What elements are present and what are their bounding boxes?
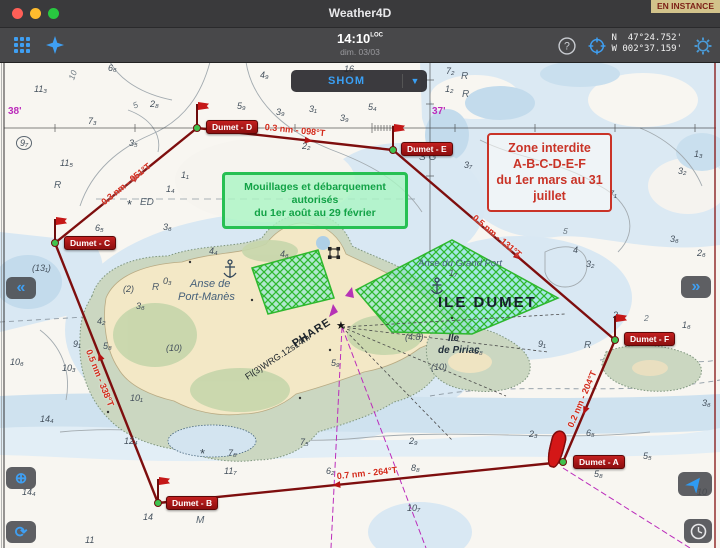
depth-sounding-label: 3₇ [464,160,472,170]
depth-sounding-label: 2₂ [302,141,310,151]
svg-text:?: ? [564,41,570,53]
depth-sounding-label: 3₂ [678,166,686,176]
depth-sounding-label: (2) [123,284,134,294]
route-leg-distance-bearing: 0.5 nm - 131°T [471,213,524,260]
chart-label: R [462,89,469,100]
depth-sounding-label: 1₂ [445,84,453,94]
note-line: Mouillages et débarquement [225,181,405,194]
depth-sounding-label: 7₈ [228,448,237,458]
depth-sounding-label: 8₈ [411,463,420,473]
depth-sounding-label: 14 [143,512,153,522]
gps-coordinates: N 47°24.752' W 002°37.159' [612,33,682,55]
waypoint-label-badge[interactable]: Dumet - C [64,236,116,250]
depth-sounding-label: 11₅ [60,158,73,168]
depth-sounding-label: 3₉ [340,113,349,123]
chevron-down-icon[interactable]: ▼ [403,76,427,86]
depth-sounding-label: (4.8) [405,332,424,342]
refresh-icon: ⟳ [15,523,28,541]
chart-label: Anse de [190,278,230,290]
depth-sounding-label: 3₁ [309,104,317,114]
waypoint-dot [611,336,619,344]
route-leg-distance-bearing: 0.7 nm - 264°T [336,465,397,481]
target-icon: ⊕ [15,469,28,487]
depth-sounding-label: 3₂ [586,259,594,269]
depth-sounding-label: 9₇ [16,136,32,150]
depth-sounding-label: (10) [166,343,182,353]
waypoint-label-badge[interactable]: Dumet - D [206,120,258,134]
window-title: Weather4D [0,6,720,20]
chart-label: ★ [336,319,346,332]
weather4d-window: 11₃7₃9₇11₅6₆164₉5₉3₉3₁3₉5₄2₂2₈3₅1₁1₄3₆6₅… [0,0,720,548]
waypoint-dot [193,124,201,132]
nautical-chart[interactable]: 11₃7₃9₇11₅6₆164₉5₉3₉3₁3₉5₄2₂2₈3₅1₁1₄3₆6₅… [0,0,720,548]
waypoint-dot [51,239,59,247]
waypoint-dot [154,499,162,507]
depth-sounding-label: 3₆ [702,398,711,408]
chart-label: R [584,340,591,351]
chart-label: Port-Manès [178,291,235,303]
note-line: du 1er mars au 31 [489,172,610,188]
chart-label: 5 [131,99,140,110]
route-leg-distance-bearing: 0.5 nm - 338°T [84,348,116,408]
depth-sounding-label: 4 [573,245,578,255]
depth-sounding-label: 3₉ [276,107,285,117]
depth-sounding-label: 10₃ [62,363,76,373]
depth-sounding-label: 7₃ [88,116,97,126]
chart-label: 5 [562,226,568,237]
depth-sounding-label: 4₉ [260,70,269,80]
chart-label: Fl(3)WRG.12s14m [243,332,311,381]
depth-sounding-label: (13₁) [32,263,51,273]
chart-label: 38' [8,106,22,117]
depth-sounding-label: 5₉ [331,358,340,368]
depth-sounding-label: 11₃ [34,84,47,94]
depth-sounding-label: 3₆ [136,301,145,311]
route-leg-distance-bearing: 0.3 nm - 098°T [264,122,325,138]
depth-sounding-label: 5₉ [237,101,246,111]
flag-icon [394,124,405,132]
depth-sounding-label: 5₅ [643,451,652,461]
waypoint-label-badge[interactable]: Dumet - F [624,332,675,346]
chart-label: ED [140,197,154,208]
chart-label: R [152,282,159,293]
depth-sounding-label: 1₇ [449,268,457,278]
depth-sounding-label: 6₅ [586,428,595,438]
chart-provider-dropdown[interactable]: SHOM ▼ [291,70,427,92]
chart-label: R [461,71,468,82]
anchorage-allowed-note: Mouillages et débarquement autorisés du … [222,172,408,229]
depth-sounding-label: 5₈ [103,341,112,351]
depth-sounding-label: (10) [431,362,447,372]
depth-sounding-label: 4₆ [280,249,289,259]
depth-sounding-label: 14₄ [40,414,54,424]
previous-button[interactable]: « [6,277,36,299]
depth-sounding-label: 3₆ [163,222,172,232]
chevrons-left-icon: « [17,279,26,297]
next-button[interactable]: » [681,276,711,298]
depth-sounding-label: 4₄ [209,246,218,256]
note-line: A-B-C-D-E-F [489,156,610,172]
depth-sounding-label: 12₄ [124,436,138,446]
depth-sounding-label: 3₆ [670,234,679,244]
status-badge: EN INSTANCE [651,0,720,13]
chart-label: M [196,515,204,526]
flag-icon [56,217,67,225]
depth-sounding-label: 10₁ [130,393,143,403]
chart-label: * [200,446,205,461]
current-time: 14:10 [337,31,370,46]
note-line: autorisés [225,194,405,207]
depth-sounding-label: 10₇ [407,503,420,513]
chart-label: * [127,197,132,212]
chart-label: 2 [644,313,649,323]
depth-sounding-label: 6₆ [108,63,117,73]
depth-sounding-label: 7₅ [300,437,309,447]
depth-sounding-label: 4₂ [97,316,105,326]
navigation-mode-button[interactable] [678,472,712,496]
window-titlebar: Weather4D [0,0,720,28]
chart-label: Ile [448,333,459,344]
flag-icon [159,477,170,485]
refresh-button[interactable]: ⟳ [6,521,36,543]
help-icon[interactable]: ? [558,37,576,55]
depth-sounding-label: 3₅ [129,138,138,148]
gear-icon[interactable] [694,37,712,55]
app-toolbar: 14:10LOC dim. 03/03 ? N 47°24.752' W 002… [0,28,720,63]
depth-sounding-label: 2₃ [529,429,538,439]
note-line: Zone interdite [489,140,610,156]
depth-sounding-label: 1₁ [181,170,189,180]
note-line: du 1er août au 29 février [225,207,405,220]
provider-label: SHOM [291,75,402,87]
chart-label: 37' [432,106,446,117]
gps-target-icon[interactable] [588,37,606,55]
route-leg-distance-bearing: 0.2 nm - 204°T [566,369,599,429]
chart-label: R [54,180,61,191]
clock-icon [690,523,707,540]
flag-icon [616,314,627,322]
depth-sounding-label: 10₆ [10,357,24,367]
chart-label: ILE DUMET [438,294,537,311]
depth-sounding-label: 9₁ [538,339,546,349]
depth-sounding-label: 0₃ [163,276,172,286]
depth-sounding-label: 6₂ [326,466,334,476]
depth-sounding-label: 6₅ [95,223,104,233]
center-position-button[interactable]: ⊕ [6,467,36,489]
time-zone-label: LOC [370,33,383,39]
depth-sounding-label: 11 [85,535,94,545]
chevrons-right-icon: » [692,278,701,296]
depth-sounding-label: 2₆ [697,248,706,258]
waypoint-label-badge[interactable]: Dumet - A [573,455,625,469]
waypoint-dot [559,458,567,466]
depth-sounding-label: 2₈ [150,99,159,109]
depth-sounding-label: 1₆ [682,320,691,330]
note-line: juillet [489,188,610,204]
depth-sounding-label: 1₄ [166,184,175,194]
chart-label: Anse du Grand Port [418,258,502,269]
depth-sounding-label: 5₄ [368,102,377,112]
waypoint-dot [389,146,397,154]
latitude-value: N 47°24.752' [612,33,682,43]
forbidden-zone-note: Zone interdite A-B-C-D-E-F du 1er mars a… [487,133,612,212]
waypoint-label-badge[interactable]: Dumet - B [166,496,218,510]
chart-label: de Piriac [438,345,480,356]
depth-sounding-label: 1₃ [694,149,703,159]
depth-sounding-label: 11₇ [224,466,237,476]
waypoint-label-badge[interactable]: Dumet - E [401,142,453,156]
longitude-value: W 002°37.159' [612,44,682,54]
flag-icon [198,102,209,110]
time-slider-button[interactable] [684,519,712,543]
depth-sounding-label: 9₁ [73,339,81,349]
depth-sounding-label: 5₈ [594,469,603,479]
nav-arrow-icon [685,475,705,493]
chart-label: 10 [66,69,79,81]
depth-sounding-label: 2₉ [409,436,418,446]
depth-sounding-label: 7₂ [446,66,454,76]
